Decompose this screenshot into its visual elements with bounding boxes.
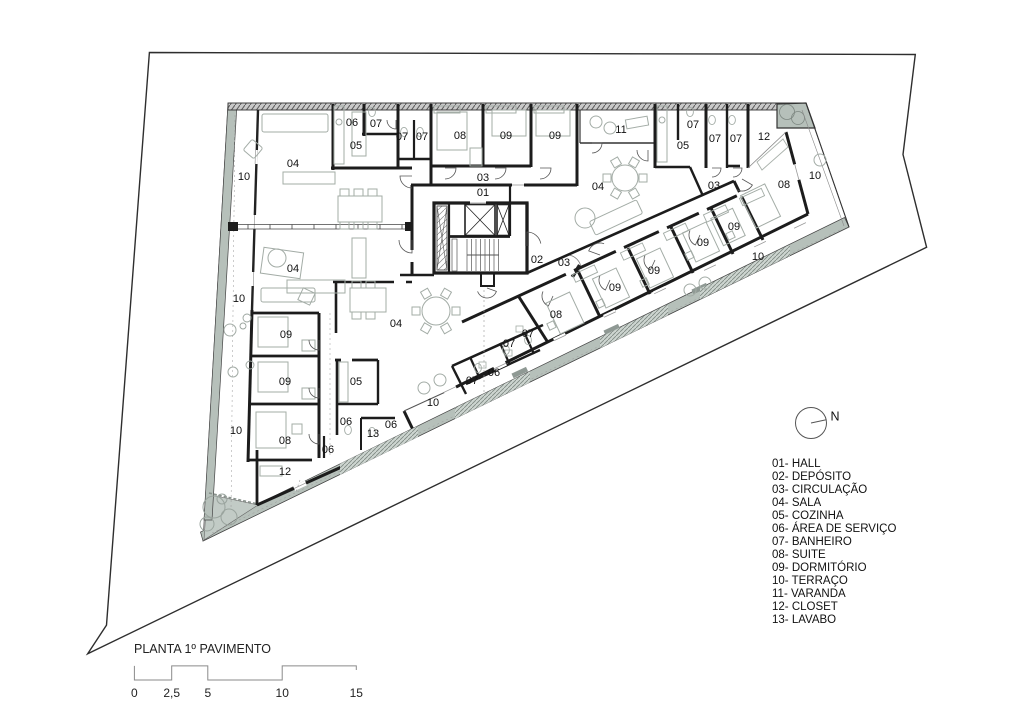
- svg-text:5: 5: [204, 686, 211, 700]
- svg-text:04: 04: [390, 318, 402, 330]
- svg-text:10: 10: [752, 251, 764, 263]
- svg-text:2,5: 2,5: [163, 686, 180, 700]
- svg-text:10: 10: [809, 170, 821, 182]
- svg-text:13: 13: [367, 428, 379, 440]
- svg-text:10: 10: [427, 397, 439, 409]
- svg-text:07: 07: [522, 328, 534, 340]
- svg-text:08- SUITE: 08- SUITE: [772, 549, 826, 561]
- svg-text:10: 10: [230, 425, 242, 437]
- svg-text:01: 01: [477, 187, 489, 199]
- svg-text:05: 05: [350, 140, 362, 152]
- svg-text:07: 07: [709, 133, 721, 145]
- svg-text:06: 06: [346, 117, 358, 129]
- svg-text:08: 08: [279, 435, 291, 447]
- svg-text:15: 15: [350, 686, 364, 700]
- svg-text:09: 09: [648, 265, 660, 277]
- svg-text:02: 02: [531, 254, 543, 266]
- svg-text:06: 06: [322, 444, 334, 456]
- svg-text:08: 08: [778, 179, 790, 191]
- svg-text:05- COZINHA: 05- COZINHA: [772, 510, 844, 522]
- svg-text:N: N: [830, 410, 839, 424]
- svg-text:09: 09: [279, 376, 291, 388]
- svg-text:05: 05: [350, 376, 362, 388]
- svg-text:07- BANHEIRO: 07- BANHEIRO: [772, 536, 852, 548]
- svg-text:09: 09: [609, 282, 621, 294]
- svg-text:06: 06: [488, 367, 500, 379]
- svg-text:04: 04: [592, 181, 604, 193]
- svg-text:08: 08: [454, 130, 466, 142]
- svg-text:04- SALA: 04- SALA: [772, 497, 822, 509]
- svg-text:02- DEPÓSITO: 02- DEPÓSITO: [772, 470, 851, 483]
- svg-text:07: 07: [687, 119, 699, 131]
- svg-text:11- VARANDA: 11- VARANDA: [772, 588, 846, 600]
- svg-text:07: 07: [730, 133, 742, 145]
- svg-text:11: 11: [615, 124, 626, 136]
- svg-text:07: 07: [503, 338, 515, 350]
- svg-text:05: 05: [677, 140, 689, 152]
- svg-text:09: 09: [280, 329, 292, 341]
- svg-text:09: 09: [500, 130, 512, 142]
- svg-text:04: 04: [287, 158, 299, 170]
- svg-text:09: 09: [697, 237, 709, 249]
- svg-text:03- CIRCULAÇÃO: 03- CIRCULAÇÃO: [772, 483, 867, 496]
- svg-text:03: 03: [558, 257, 570, 269]
- svg-text:07: 07: [370, 118, 382, 130]
- svg-text:10- TERRAÇO: 10- TERRAÇO: [772, 575, 848, 587]
- svg-text:07: 07: [466, 375, 478, 387]
- svg-text:04: 04: [287, 263, 299, 275]
- svg-text:10: 10: [276, 686, 290, 700]
- svg-text:12- CLOSET: 12- CLOSET: [772, 601, 838, 613]
- svg-text:07: 07: [416, 131, 428, 143]
- svg-text:01- HALL: 01- HALL: [772, 458, 821, 470]
- svg-text:0: 0: [131, 686, 138, 700]
- svg-text:12: 12: [758, 131, 770, 143]
- svg-text:03: 03: [708, 180, 720, 192]
- svg-text:09: 09: [728, 221, 740, 233]
- svg-text:07: 07: [396, 131, 408, 143]
- svg-text:06: 06: [385, 419, 397, 431]
- svg-text:12: 12: [279, 466, 291, 478]
- svg-text:PLANTA 1º PAVIMENTO: PLANTA 1º PAVIMENTO: [134, 642, 271, 656]
- svg-text:10: 10: [238, 171, 250, 183]
- svg-text:03: 03: [477, 172, 489, 184]
- svg-text:06- ÁREA DE SERVIÇO: 06- ÁREA DE SERVIÇO: [772, 522, 896, 535]
- svg-text:13- LAVABO: 13- LAVABO: [772, 614, 836, 626]
- svg-text:08: 08: [550, 309, 562, 321]
- svg-text:10: 10: [233, 293, 245, 305]
- svg-text:09: 09: [549, 130, 561, 142]
- svg-text:09- DORMITÓRIO: 09- DORMITÓRIO: [772, 561, 867, 574]
- svg-text:06: 06: [340, 416, 352, 428]
